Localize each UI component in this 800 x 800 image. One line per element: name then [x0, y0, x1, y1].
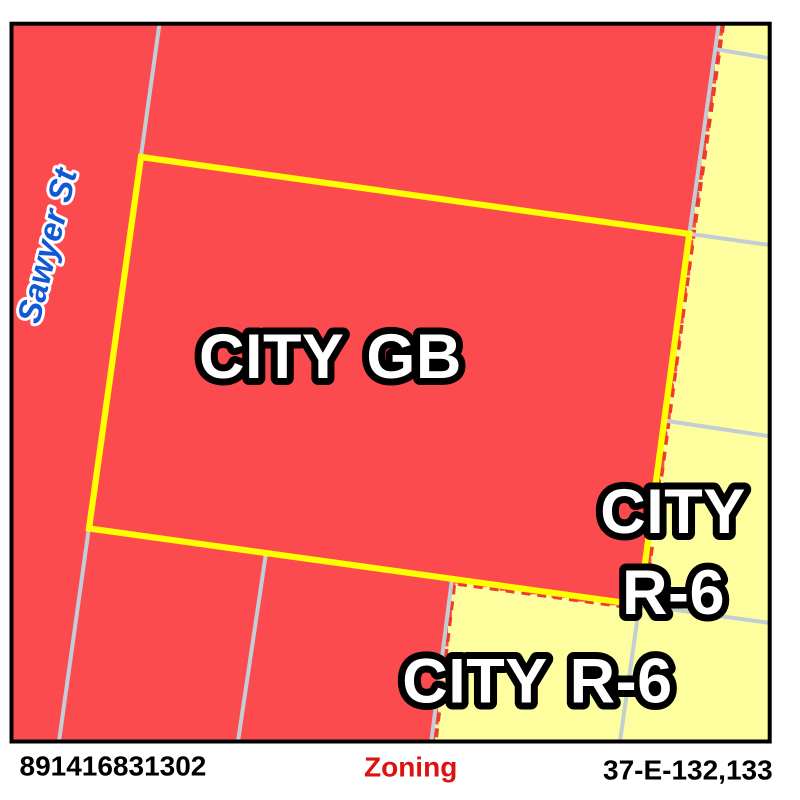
svg-text:R-6: R-6	[622, 558, 725, 628]
svg-text:CITY: CITY	[600, 477, 746, 547]
svg-text:CITY R-6: CITY R-6	[402, 646, 672, 716]
svg-text:Zoning: Zoning	[364, 752, 457, 783]
svg-text:37-E-132,133: 37-E-132,133	[603, 755, 773, 786]
svg-text:891416831302: 891416831302	[20, 751, 207, 782]
svg-text:CITY GB: CITY GB	[199, 322, 462, 392]
